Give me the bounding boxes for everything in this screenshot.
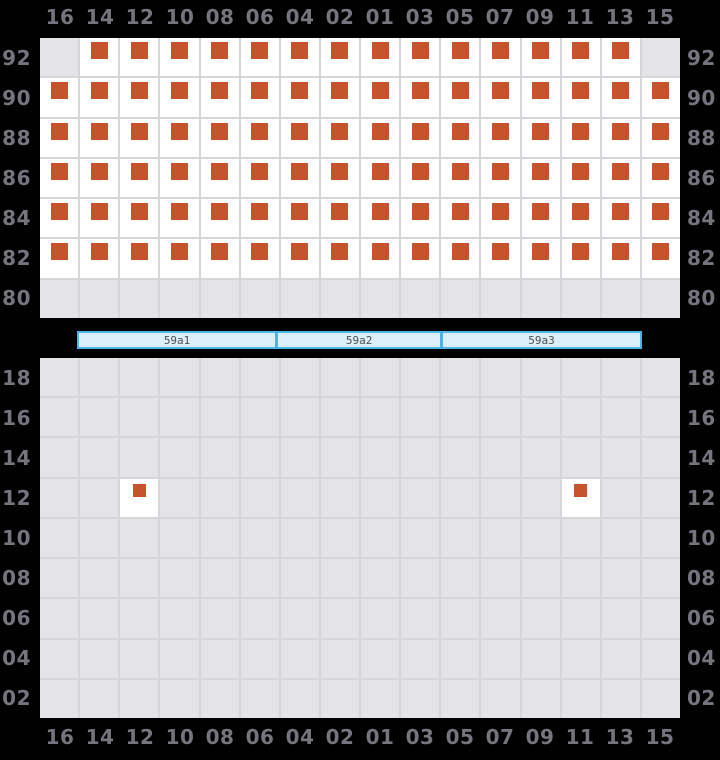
- column-label-bottom-15: 15: [640, 718, 680, 756]
- occupied-marker: [412, 42, 429, 59]
- berth-cell-unavailable-18-05: [441, 358, 479, 396]
- column-label-top-04: 04: [280, 0, 320, 34]
- occupied-marker: [652, 123, 669, 140]
- upper-row-label-right-82: 82: [680, 238, 720, 278]
- upper-row-label-right-86: 86: [680, 158, 720, 198]
- berth-cell-occupied-12-11[interactable]: [562, 479, 600, 517]
- berth-cell-unavailable-80-02: [321, 280, 359, 318]
- berth-cell-occupied-84-03[interactable]: [401, 199, 439, 237]
- berth-cell-unavailable-18-02: [321, 358, 359, 396]
- berth-cell-occupied-82-12[interactable]: [120, 239, 158, 277]
- berth-cell-occupied-88-15[interactable]: [642, 119, 680, 157]
- berth-cell-unavailable-14-01: [361, 438, 399, 476]
- upper-row-label-left-92: 92: [0, 38, 40, 78]
- berth-cell-unavailable-10-09: [522, 519, 560, 557]
- berth-cell-occupied-90-04[interactable]: [281, 78, 319, 116]
- occupied-marker: [251, 82, 268, 99]
- berth-cell-occupied-82-04[interactable]: [281, 239, 319, 277]
- occupied-marker: [91, 123, 108, 140]
- berth-cell-occupied-84-14[interactable]: [80, 199, 118, 237]
- occupied-marker: [131, 42, 148, 59]
- berth-cell-unavailable-06-08: [201, 599, 239, 637]
- berth-cell-unavailable-80-08: [201, 280, 239, 318]
- occupied-marker: [91, 82, 108, 99]
- berth-cell-unavailable-18-04: [281, 358, 319, 396]
- berth-cell-unavailable-10-05: [441, 519, 479, 557]
- column-label-bottom-14: 14: [80, 718, 120, 756]
- section-segment-label: 59a3: [528, 334, 555, 347]
- berth-cell-occupied-82-09[interactable]: [522, 239, 560, 277]
- section-segment-59a2: 59a2: [278, 333, 440, 347]
- berth-cell-unavailable-14-14: [80, 438, 118, 476]
- berth-cell-unavailable-08-03: [401, 559, 439, 597]
- berth-cell-unavailable-04-14: [80, 640, 118, 678]
- berth-cell-occupied-90-13[interactable]: [602, 78, 640, 116]
- occupied-marker: [572, 243, 589, 260]
- berth-cell-occupied-90-02[interactable]: [321, 78, 359, 116]
- berth-cell-unavailable-04-13: [602, 640, 640, 678]
- berth-cell-unavailable-10-11: [562, 519, 600, 557]
- berth-cell-occupied-86-12[interactable]: [120, 159, 158, 197]
- berth-cell-occupied-92-11[interactable]: [562, 38, 600, 76]
- occupied-marker: [331, 243, 348, 260]
- berth-cell-unavailable-08-12: [120, 559, 158, 597]
- berth-cell-occupied-90-03[interactable]: [401, 78, 439, 116]
- occupied-marker: [572, 163, 589, 180]
- upper-row-label-left-90: 90: [0, 78, 40, 118]
- column-label-bottom-07: 07: [480, 718, 520, 756]
- lower-row-label-left-04: 04: [0, 638, 40, 678]
- berth-cell-occupied-84-05[interactable]: [441, 199, 479, 237]
- berth-cell-unavailable-12-02: [321, 479, 359, 517]
- berth-cell-unavailable-10-04: [281, 519, 319, 557]
- berth-cell-occupied-84-02[interactable]: [321, 199, 359, 237]
- berth-cell-occupied-84-15[interactable]: [642, 199, 680, 237]
- berth-cell-occupied-92-01[interactable]: [361, 38, 399, 76]
- upper-row-label-left-84: 84: [0, 198, 40, 238]
- berth-cell-occupied-82-14[interactable]: [80, 239, 118, 277]
- occupied-marker: [372, 123, 389, 140]
- occupied-marker: [532, 163, 549, 180]
- berth-cell-unavailable-02-01: [361, 680, 399, 718]
- berth-cell-occupied-92-10[interactable]: [160, 38, 198, 76]
- occupied-marker: [372, 163, 389, 180]
- occupied-marker: [131, 123, 148, 140]
- berth-cell-occupied-86-16[interactable]: [40, 159, 78, 197]
- occupied-marker: [251, 163, 268, 180]
- lower-row-label-right-06: 06: [680, 598, 720, 638]
- occupied-marker: [452, 123, 469, 140]
- occupied-marker: [612, 243, 629, 260]
- berth-cell-unavailable-14-11: [562, 438, 600, 476]
- column-label-top-10: 10: [160, 0, 200, 34]
- carriage-section-bar: 59a159a259a3: [77, 331, 642, 349]
- berth-cell-occupied-86-04[interactable]: [281, 159, 319, 197]
- berth-cell-occupied-86-08[interactable]: [201, 159, 239, 197]
- berth-cell-unavailable-18-03: [401, 358, 439, 396]
- berth-cell-unavailable-12-05: [441, 479, 479, 517]
- berth-cell-unavailable-16-03: [401, 398, 439, 436]
- occupied-marker: [532, 123, 549, 140]
- berth-cell-occupied-92-08[interactable]: [201, 38, 239, 76]
- berth-cell-unavailable-16-07: [481, 398, 519, 436]
- berth-cell-unavailable-04-04: [281, 640, 319, 678]
- occupied-marker: [211, 42, 228, 59]
- berth-cell-occupied-82-16[interactable]: [40, 239, 78, 277]
- berth-cell-unavailable-02-14: [80, 680, 118, 718]
- occupied-marker: [492, 82, 509, 99]
- column-label-bottom-10: 10: [160, 718, 200, 756]
- berth-cell-occupied-86-13[interactable]: [602, 159, 640, 197]
- berth-cell-unavailable-04-02: [321, 640, 359, 678]
- berth-cell-occupied-90-09[interactable]: [522, 78, 560, 116]
- occupied-marker: [492, 42, 509, 59]
- berth-cell-occupied-92-03[interactable]: [401, 38, 439, 76]
- occupied-marker: [372, 203, 389, 220]
- berth-cell-occupied-92-09[interactable]: [522, 38, 560, 76]
- occupied-marker: [171, 243, 188, 260]
- berth-cell-occupied-88-03[interactable]: [401, 119, 439, 157]
- berth-cell-unavailable-06-16: [40, 599, 78, 637]
- column-label-bottom-16: 16: [40, 718, 80, 756]
- berth-cell-occupied-88-12[interactable]: [120, 119, 158, 157]
- berth-cell-occupied-86-02[interactable]: [321, 159, 359, 197]
- occupied-marker: [412, 163, 429, 180]
- occupied-marker: [492, 203, 509, 220]
- berth-cell-occupied-84-08[interactable]: [201, 199, 239, 237]
- occupied-marker: [251, 203, 268, 220]
- berth-cell-unavailable-06-04: [281, 599, 319, 637]
- occupied-marker: [51, 243, 68, 260]
- berth-cell-occupied-84-11[interactable]: [562, 199, 600, 237]
- berth-cell-unavailable-16-11: [562, 398, 600, 436]
- column-label-top-01: 01: [360, 0, 400, 34]
- column-label-bottom-04: 04: [280, 718, 320, 756]
- occupied-marker: [131, 82, 148, 99]
- berth-cell-unavailable-06-07: [481, 599, 519, 637]
- berth-cell-occupied-90-01[interactable]: [361, 78, 399, 116]
- berth-cell-unavailable-14-03: [401, 438, 439, 476]
- berth-cell-unavailable-08-15: [642, 559, 680, 597]
- berth-cell-unavailable-02-10: [160, 680, 198, 718]
- berth-cell-occupied-82-10[interactable]: [160, 239, 198, 277]
- column-label-top-02: 02: [320, 0, 360, 34]
- occupied-marker: [51, 82, 68, 99]
- berth-cell-occupied-92-06[interactable]: [241, 38, 279, 76]
- berth-cell-unavailable-14-12: [120, 438, 158, 476]
- occupied-marker: [251, 123, 268, 140]
- berth-cell-occupied-82-06[interactable]: [241, 239, 279, 277]
- berth-cell-unavailable-12-15: [642, 479, 680, 517]
- berth-cell-occupied-92-02[interactable]: [321, 38, 359, 76]
- section-segment-59a3: 59a3: [443, 333, 640, 347]
- berth-cell-unavailable-06-14: [80, 599, 118, 637]
- berth-cell-occupied-88-10[interactable]: [160, 119, 198, 157]
- lower-row-label-left-16: 16: [0, 398, 40, 438]
- berth-cell-occupied-86-01[interactable]: [361, 159, 399, 197]
- berth-cell-unavailable-02-04: [281, 680, 319, 718]
- berth-cell-occupied-86-15[interactable]: [642, 159, 680, 197]
- lower-row-label-left-12: 12: [0, 478, 40, 518]
- berth-cell-unavailable-08-09: [522, 559, 560, 597]
- occupied-marker: [331, 123, 348, 140]
- berth-cell-occupied-92-05[interactable]: [441, 38, 479, 76]
- lower-row-label-left-14: 14: [0, 438, 40, 478]
- berth-cell-unavailable-12-06: [241, 479, 279, 517]
- occupied-marker: [452, 203, 469, 220]
- occupied-marker: [412, 243, 429, 260]
- occupied-marker: [612, 42, 629, 59]
- occupied-marker: [331, 203, 348, 220]
- berth-cell-unavailable-80-15: [642, 280, 680, 318]
- berth-cell-occupied-88-08[interactable]: [201, 119, 239, 157]
- berth-cell-unavailable-16-05: [441, 398, 479, 436]
- berth-cell-unavailable-06-12: [120, 599, 158, 637]
- occupied-marker: [51, 163, 68, 180]
- berth-cell-occupied-86-07[interactable]: [481, 159, 519, 197]
- berth-cell-unavailable-80-03: [401, 280, 439, 318]
- occupied-marker: [91, 42, 108, 59]
- upper-row-label-right-90: 90: [680, 78, 720, 118]
- berth-cell-occupied-90-08[interactable]: [201, 78, 239, 116]
- berth-cell-occupied-90-15[interactable]: [642, 78, 680, 116]
- upper-row-label-left-82: 82: [0, 238, 40, 278]
- berth-cell-unavailable-08-01: [361, 559, 399, 597]
- occupied-marker: [291, 203, 308, 220]
- occupied-marker: [171, 82, 188, 99]
- occupied-marker: [372, 243, 389, 260]
- berth-cell-occupied-88-05[interactable]: [441, 119, 479, 157]
- occupied-marker: [211, 203, 228, 220]
- berth-cell-occupied-92-07[interactable]: [481, 38, 519, 76]
- berth-cell-occupied-84-16[interactable]: [40, 199, 78, 237]
- berth-cell-occupied-88-09[interactable]: [522, 119, 560, 157]
- berth-cell-occupied-92-12[interactable]: [120, 38, 158, 76]
- occupied-marker: [612, 82, 629, 99]
- berth-cell-occupied-82-13[interactable]: [602, 239, 640, 277]
- berth-cell-occupied-88-02[interactable]: [321, 119, 359, 157]
- lower-row-label-right-18: 18: [680, 358, 720, 398]
- berth-cell-unavailable-04-11: [562, 640, 600, 678]
- berth-cell-unavailable-02-06: [241, 680, 279, 718]
- berth-cell-unavailable-10-06: [241, 519, 279, 557]
- berth-cell-occupied-84-12[interactable]: [120, 199, 158, 237]
- berth-cell-unavailable-14-04: [281, 438, 319, 476]
- upper-row-label-right-92: 92: [680, 38, 720, 78]
- berth-cell-unavailable-02-15: [642, 680, 680, 718]
- occupied-marker: [652, 243, 669, 260]
- berth-cell-occupied-88-06[interactable]: [241, 119, 279, 157]
- berth-cell-unavailable-80-04: [281, 280, 319, 318]
- berth-cell-occupied-90-07[interactable]: [481, 78, 519, 116]
- berth-cell-unavailable-10-12: [120, 519, 158, 557]
- berth-cell-unavailable-04-05: [441, 640, 479, 678]
- berth-cell-unavailable-18-14: [80, 358, 118, 396]
- berth-cell-occupied-88-04[interactable]: [281, 119, 319, 157]
- occupied-marker: [612, 163, 629, 180]
- berth-cell-occupied-88-11[interactable]: [562, 119, 600, 157]
- lower-row-label-right-14: 14: [680, 438, 720, 478]
- berth-map: 16141210080604020103050709111315 9290888…: [0, 0, 720, 760]
- berth-cell-occupied-88-16[interactable]: [40, 119, 78, 157]
- berth-cell-unavailable-06-10: [160, 599, 198, 637]
- column-label-top-06: 06: [240, 0, 280, 34]
- berth-cell-unavailable-02-07: [481, 680, 519, 718]
- berth-cell-occupied-86-14[interactable]: [80, 159, 118, 197]
- berth-cell-unavailable-04-06: [241, 640, 279, 678]
- berth-cell-occupied-86-06[interactable]: [241, 159, 279, 197]
- berth-cell-unavailable-12-01: [361, 479, 399, 517]
- berth-cell-occupied-84-10[interactable]: [160, 199, 198, 237]
- occupied-marker: [331, 163, 348, 180]
- berth-cell-occupied-82-02[interactable]: [321, 239, 359, 277]
- berth-cell-unavailable-10-02: [321, 519, 359, 557]
- occupied-marker: [291, 243, 308, 260]
- berth-cell-unavailable-80-07: [481, 280, 519, 318]
- occupied-marker: [532, 42, 549, 59]
- berth-cell-unavailable-80-06: [241, 280, 279, 318]
- berth-cell-occupied-90-10[interactable]: [160, 78, 198, 116]
- column-label-bottom-08: 08: [200, 718, 240, 756]
- berth-cell-unavailable-80-13: [602, 280, 640, 318]
- berth-cell-occupied-86-09[interactable]: [522, 159, 560, 197]
- berth-cell-unavailable-16-13: [602, 398, 640, 436]
- column-label-top-03: 03: [400, 0, 440, 34]
- berth-cell-occupied-82-01[interactable]: [361, 239, 399, 277]
- berth-cell-occupied-90-06[interactable]: [241, 78, 279, 116]
- berth-cell-unavailable-02-12: [120, 680, 158, 718]
- berth-cell-occupied-82-15[interactable]: [642, 239, 680, 277]
- column-label-bottom-06: 06: [240, 718, 280, 756]
- berth-cell-unavailable-02-11: [562, 680, 600, 718]
- occupied-marker: [291, 163, 308, 180]
- occupied-marker: [572, 123, 589, 140]
- berth-cell-occupied-90-12[interactable]: [120, 78, 158, 116]
- berth-cell-occupied-90-05[interactable]: [441, 78, 479, 116]
- berth-cell-unavailable-06-15: [642, 599, 680, 637]
- berth-cell-unavailable-04-10: [160, 640, 198, 678]
- berth-cell-occupied-82-11[interactable]: [562, 239, 600, 277]
- lower-row-label-left-08: 08: [0, 558, 40, 598]
- berth-cell-occupied-90-11[interactable]: [562, 78, 600, 116]
- berth-cell-unavailable-16-01: [361, 398, 399, 436]
- berth-cell-occupied-82-08[interactable]: [201, 239, 239, 277]
- column-label-bottom-01: 01: [360, 718, 400, 756]
- occupied-marker: [171, 203, 188, 220]
- berth-cell-unavailable-12-07: [481, 479, 519, 517]
- berth-cell-occupied-86-05[interactable]: [441, 159, 479, 197]
- occupied-marker: [211, 123, 228, 140]
- berth-cell-occupied-84-13[interactable]: [602, 199, 640, 237]
- berth-cell-occupied-92-13[interactable]: [602, 38, 640, 76]
- berth-cell-occupied-90-14[interactable]: [80, 78, 118, 116]
- berth-cell-unavailable-16-10: [160, 398, 198, 436]
- occupied-marker: [452, 42, 469, 59]
- berth-cell-occupied-82-03[interactable]: [401, 239, 439, 277]
- berth-cell-occupied-90-16[interactable]: [40, 78, 78, 116]
- berth-cell-unavailable-08-05: [441, 559, 479, 597]
- berth-cell-unavailable-14-02: [321, 438, 359, 476]
- berth-cell-unavailable-80-12: [120, 280, 158, 318]
- berth-cell-unavailable-12-03: [401, 479, 439, 517]
- berth-cell-occupied-82-05[interactable]: [441, 239, 479, 277]
- berth-cell-unavailable-08-10: [160, 559, 198, 597]
- column-label-top-12: 12: [120, 0, 160, 34]
- occupied-marker: [574, 484, 587, 497]
- upper-row-label-right-84: 84: [680, 198, 720, 238]
- berth-cell-occupied-92-14[interactable]: [80, 38, 118, 76]
- berth-cell-unavailable-12-04: [281, 479, 319, 517]
- berth-cell-unavailable-02-09: [522, 680, 560, 718]
- occupied-marker: [652, 163, 669, 180]
- upper-row-label-left-80: 80: [0, 278, 40, 318]
- lower-row-label-right-12: 12: [680, 478, 720, 518]
- berth-cell-occupied-84-06[interactable]: [241, 199, 279, 237]
- berth-cell-unavailable-08-16: [40, 559, 78, 597]
- occupied-marker: [251, 42, 268, 59]
- occupied-marker: [492, 123, 509, 140]
- lower-row-label-left-06: 06: [0, 598, 40, 638]
- berth-cell-unavailable-18-08: [201, 358, 239, 396]
- occupied-marker: [133, 484, 146, 497]
- berth-cell-unavailable-10-01: [361, 519, 399, 557]
- berth-cell-unavailable-14-13: [602, 438, 640, 476]
- berth-cell-occupied-84-07[interactable]: [481, 199, 519, 237]
- berth-cell-occupied-84-01[interactable]: [361, 199, 399, 237]
- berth-cell-unavailable-12-16: [40, 479, 78, 517]
- berth-cell-unavailable-14-09: [522, 438, 560, 476]
- berth-cell-occupied-86-11[interactable]: [562, 159, 600, 197]
- berth-cell-unavailable-02-02: [321, 680, 359, 718]
- berth-cell-unavailable-10-15: [642, 519, 680, 557]
- occupied-marker: [211, 163, 228, 180]
- berth-cell-unavailable-02-08: [201, 680, 239, 718]
- upper-row-label-left-86: 86: [0, 158, 40, 198]
- berth-cell-occupied-88-01[interactable]: [361, 119, 399, 157]
- berth-cell-unavailable-06-11: [562, 599, 600, 637]
- berth-cell-occupied-88-14[interactable]: [80, 119, 118, 157]
- berth-cell-occupied-84-04[interactable]: [281, 199, 319, 237]
- berth-cell-occupied-92-04[interactable]: [281, 38, 319, 76]
- berth-cell-occupied-12-12[interactable]: [120, 479, 158, 517]
- occupied-marker: [331, 82, 348, 99]
- berth-cell-occupied-82-07[interactable]: [481, 239, 519, 277]
- berth-cell-occupied-86-10[interactable]: [160, 159, 198, 197]
- berth-cell-unavailable-06-06: [241, 599, 279, 637]
- column-label-bottom-09: 09: [520, 718, 560, 756]
- lower-row-label-right-16: 16: [680, 398, 720, 438]
- occupied-marker: [51, 123, 68, 140]
- berth-cell-occupied-88-13[interactable]: [602, 119, 640, 157]
- berth-cell-occupied-86-03[interactable]: [401, 159, 439, 197]
- berth-cell-unavailable-80-16: [40, 280, 78, 318]
- berth-cell-occupied-84-09[interactable]: [522, 199, 560, 237]
- berth-cell-unavailable-80-10: [160, 280, 198, 318]
- berth-cell-unavailable-04-03: [401, 640, 439, 678]
- berth-cell-unavailable-16-06: [241, 398, 279, 436]
- column-label-top-16: 16: [40, 0, 80, 34]
- lower-deck-grid: [40, 358, 680, 718]
- berth-cell-unavailable-16-14: [80, 398, 118, 436]
- berth-cell-occupied-88-07[interactable]: [481, 119, 519, 157]
- berth-cell-unavailable-80-05: [441, 280, 479, 318]
- berth-cell-unavailable-12-13: [602, 479, 640, 517]
- column-label-top-09: 09: [520, 0, 560, 34]
- column-label-bottom-13: 13: [600, 718, 640, 756]
- berth-cell-unavailable-92-16: [40, 38, 78, 76]
- lower-row-label-left-02: 02: [0, 678, 40, 718]
- occupied-marker: [532, 243, 549, 260]
